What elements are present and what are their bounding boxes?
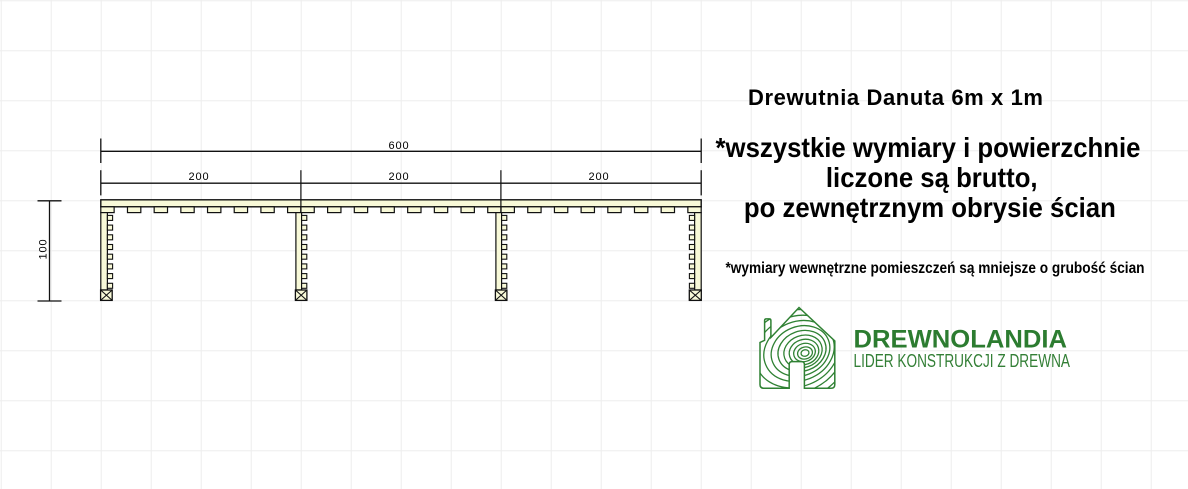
svg-text:LIDER KONSTRUKCJI Z DREWNA: LIDER KONSTRUKCJI Z DREWNA: [854, 350, 1071, 371]
